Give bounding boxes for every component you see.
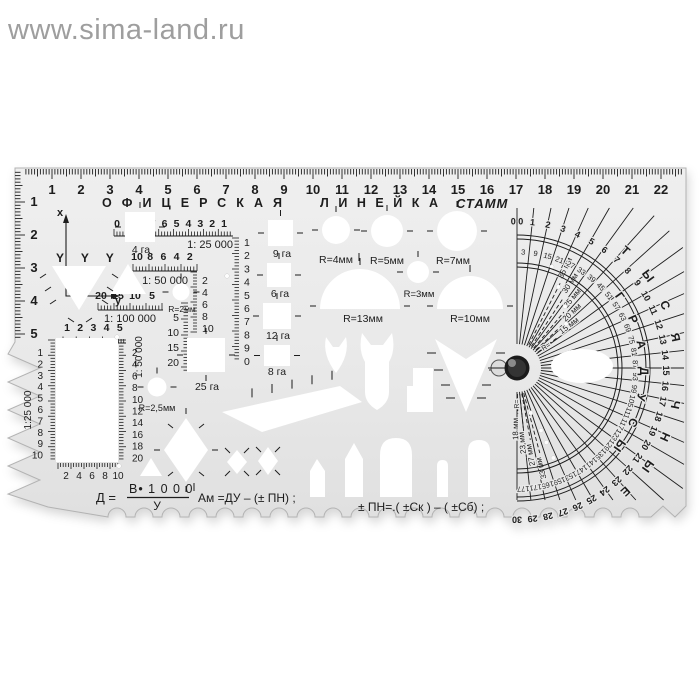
brand: СТАММ	[456, 196, 509, 211]
column-digit: 6	[244, 303, 250, 315]
cm-number: 11	[335, 182, 349, 197]
gauge-digit: 18	[132, 442, 144, 453]
column-digit: 7	[244, 316, 250, 328]
cutout	[371, 215, 403, 247]
cm-number: 17	[509, 182, 523, 197]
pin-hole	[564, 322, 568, 326]
formula-numerator: В• 1 0 0 0	[129, 482, 193, 496]
cutout	[56, 338, 118, 462]
axis-x-label: x	[57, 207, 64, 219]
mil-number: 16	[660, 381, 671, 392]
mil-number: 17	[657, 396, 669, 408]
pin-hole	[529, 411, 533, 415]
degree-number: 3	[521, 248, 526, 257]
scale-digit: 1	[64, 322, 70, 334]
radius-label: R=7мм	[436, 255, 470, 267]
gauge-digit: 3	[37, 371, 43, 382]
cm-number: 8	[251, 182, 258, 197]
gauge-digit: 4	[76, 471, 82, 482]
radius-label: R=2мм	[168, 304, 196, 314]
area-label: 6 га	[271, 288, 289, 300]
scale-digit: 4	[174, 251, 180, 263]
mil-number: 13	[657, 334, 669, 346]
cutout	[322, 216, 350, 244]
cutout	[264, 345, 290, 366]
r-prefix: R=	[514, 399, 521, 409]
pin-hole	[225, 274, 230, 279]
cutout	[187, 338, 225, 372]
tree-symbols: Y Y Y	[56, 251, 121, 265]
gauge-digit: 4	[37, 382, 43, 393]
gauge-digit: 2	[37, 359, 43, 370]
pin-hole	[544, 440, 548, 444]
cm-number: 4	[30, 293, 38, 308]
cutout	[437, 460, 448, 497]
cutout	[125, 212, 155, 242]
area-label: 12 га	[266, 330, 290, 342]
scale-digit: 3	[197, 218, 203, 230]
column-digit: 2	[202, 275, 208, 287]
cm-number: 3	[30, 260, 37, 275]
gauge-digit: 20	[132, 453, 144, 464]
cm-number: 15	[451, 182, 465, 197]
radius-label: R=5мм	[370, 255, 404, 267]
radius-label: R=4мм	[319, 254, 353, 266]
gauge-digit: 6	[37, 405, 43, 416]
scale-digit: 0	[114, 218, 120, 230]
scale-digit: 4	[185, 218, 191, 230]
column-digit: 4	[202, 287, 208, 299]
pin-hole	[117, 464, 122, 469]
tree-symbols: Y Y Y	[56, 251, 121, 265]
scale-digit: 6	[162, 218, 168, 230]
formula-am: Ам =ДУ – (± ПН) ;	[198, 491, 296, 505]
cutout	[437, 211, 477, 251]
radius-label: R=3мм	[404, 289, 435, 300]
column-digit: 2	[244, 250, 250, 262]
cm-number: 3	[106, 182, 113, 197]
cutout	[407, 261, 429, 283]
column-digit: 6	[202, 299, 208, 311]
scale-digit: 5	[149, 290, 155, 302]
gauge-label: 1: 50 000	[134, 336, 145, 378]
cm-number: 13	[393, 182, 407, 197]
cm-number: 5	[164, 182, 171, 197]
axis-y-label: y	[115, 295, 122, 307]
degree-number: 177	[517, 484, 530, 494]
gauge-digit: 8	[132, 383, 138, 394]
scale-digit: 4	[104, 322, 110, 334]
ellipse-cutout	[551, 349, 613, 383]
formula-d: Д =	[96, 490, 116, 505]
gauge-digit: 10	[32, 451, 44, 462]
gauge-digit: 6	[89, 471, 95, 482]
cm-number: 5	[30, 326, 37, 341]
cm-number: 16	[480, 182, 494, 197]
column-digit: 10	[202, 323, 214, 335]
gauge-digit: 8	[102, 471, 108, 482]
degree-number: 171	[529, 482, 543, 493]
column-digit: 9	[244, 343, 250, 355]
column-digit: 3	[244, 263, 250, 275]
gauge-digit: 5	[37, 394, 43, 405]
column-digit: 10	[167, 327, 179, 339]
area-label: 8 га	[268, 366, 286, 378]
scale-digit: 1	[221, 218, 227, 230]
pivot-highlight	[508, 359, 516, 367]
gauge-digit: 7	[37, 416, 43, 427]
scale-digit: 2	[77, 322, 83, 334]
cm-number: 2	[30, 227, 37, 242]
cutout	[173, 284, 190, 301]
scale-digit: 6	[160, 251, 166, 263]
radius-label: R=13мм	[343, 313, 383, 325]
gauge-digit: 14	[132, 418, 144, 429]
cutout	[268, 220, 293, 246]
cm-number: 2	[77, 182, 84, 197]
mil-number: 1	[530, 217, 536, 227]
area-label: 25 га	[195, 381, 219, 393]
cutout	[263, 303, 291, 329]
pin-hole	[551, 456, 555, 460]
mil-number: 30	[512, 515, 522, 525]
cm-number: 20	[596, 182, 610, 197]
gauge-digit: 2	[63, 471, 69, 482]
formula-denominator: У	[153, 499, 161, 513]
cutout	[148, 378, 167, 397]
scale-digit: 5	[117, 322, 123, 334]
cutout	[468, 440, 490, 497]
column-digit: 15	[167, 342, 179, 354]
gauge-digit: 1	[37, 348, 43, 359]
column-digit: 20	[167, 357, 179, 369]
column-digit: 8	[202, 311, 208, 323]
cm-number: 6	[193, 182, 200, 197]
cm-number: 1	[48, 182, 55, 197]
mil-number: 28	[542, 510, 554, 522]
cm-number: 4	[135, 182, 143, 197]
pin-hole	[115, 335, 120, 340]
scale-digit: 2	[187, 251, 193, 263]
pin-hole	[563, 304, 567, 308]
scale-digit: 5	[174, 218, 180, 230]
cutout	[267, 263, 291, 287]
mil-number: 0 0	[511, 217, 524, 227]
gauge-digit: 16	[132, 430, 144, 441]
cm-number: 14	[422, 182, 437, 197]
cm-number: 22	[654, 182, 668, 197]
mil-number: 14	[660, 349, 671, 360]
brand-label: СТАММ	[456, 196, 509, 211]
cutout	[380, 438, 412, 497]
scale-digit: 2	[209, 218, 215, 230]
cm-number: 18	[538, 182, 552, 197]
area-label: 9 га	[273, 248, 291, 260]
cm-number: 12	[364, 182, 378, 197]
degrees-word-letter: Д	[637, 367, 651, 376]
gauge-digit: 8	[37, 428, 43, 439]
cm-number: 1	[30, 194, 37, 209]
column-digit: 0	[244, 356, 250, 368]
gauge-digit: 9	[37, 439, 43, 450]
cm-number: 9	[280, 182, 287, 197]
column-digit: 4	[244, 277, 250, 289]
cm-number: 19	[567, 182, 581, 197]
radius-label: R=2,5мм	[139, 403, 176, 413]
area-label: 4 га	[132, 244, 150, 256]
scale-digit: 3	[90, 322, 96, 334]
gauge-label: 1:25 000	[23, 390, 34, 429]
scale-label: 1: 25 000	[187, 239, 233, 251]
column-digit: 5	[244, 290, 250, 302]
gauge-digit: 10	[112, 471, 124, 482]
scale-label: 1: 100 000	[104, 313, 156, 325]
cm-number: 21	[625, 182, 639, 197]
pin-hole	[556, 285, 560, 289]
mil-number: 15	[661, 365, 671, 375]
mil-number: 29	[527, 513, 538, 524]
column-digit: 1	[244, 237, 250, 249]
cm-number: 10	[306, 182, 320, 197]
radius-label: R=10мм	[450, 313, 490, 325]
cm-number: 7	[222, 182, 229, 197]
column-digit: 8	[244, 329, 250, 341]
officer-ruler-template: 1234567891011121314151617181920212212345…	[0, 0, 700, 700]
product-photo: www.sima-land.ru 12345678910111213141516…	[0, 0, 700, 700]
pin-hole	[539, 428, 543, 432]
formula-pn: ± ПН=.( ±Ск ) – ( ±Сб) ;	[358, 500, 484, 514]
